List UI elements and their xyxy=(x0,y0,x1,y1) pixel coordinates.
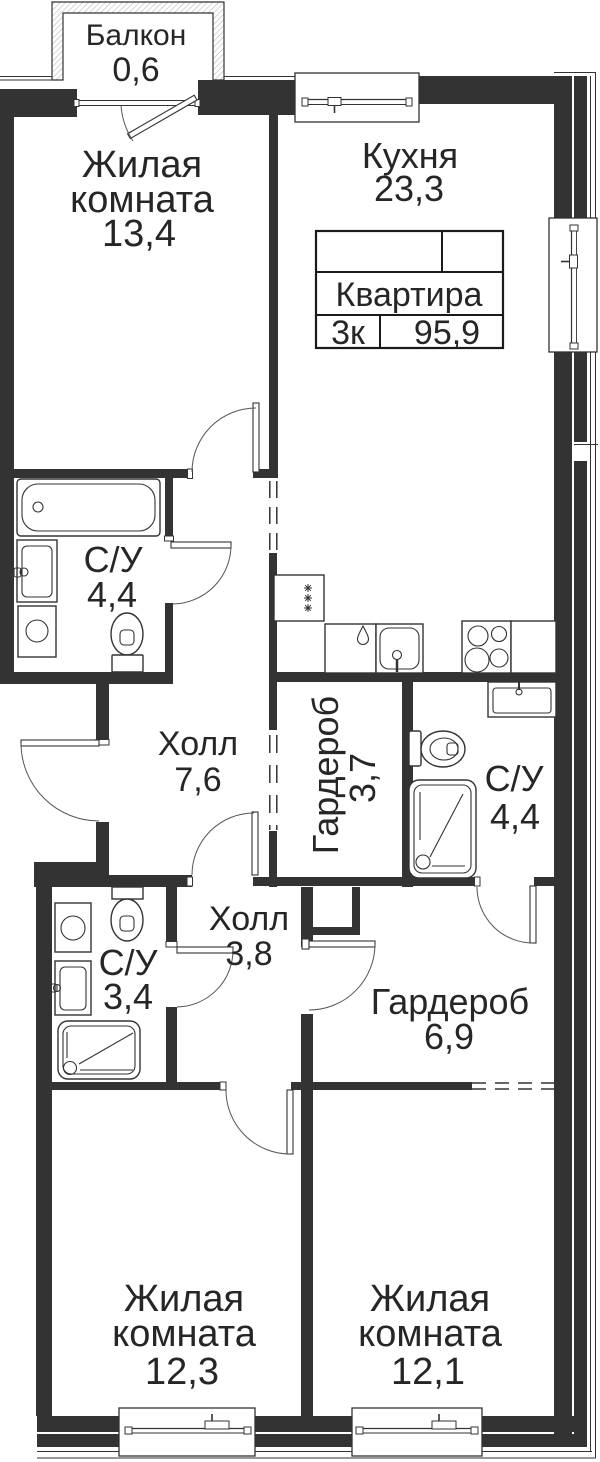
svg-text:13,4: 13,4 xyxy=(102,213,176,255)
svg-text:Балкон: Балкон xyxy=(86,19,187,52)
svg-text:3к: 3к xyxy=(331,314,366,352)
svg-text:С/У: С/У xyxy=(485,758,545,799)
svg-text:комната: комната xyxy=(358,1313,503,1355)
svg-text:4,4: 4,4 xyxy=(87,574,137,615)
svg-text:3,4: 3,4 xyxy=(103,976,153,1017)
svg-text:3,8: 3,8 xyxy=(225,935,272,973)
svg-text:95,9: 95,9 xyxy=(414,314,480,352)
svg-text:Холл: Холл xyxy=(158,725,238,763)
svg-text:Квартира: Квартира xyxy=(336,276,483,314)
svg-text:12,3: 12,3 xyxy=(145,1351,219,1393)
svg-text:23,3: 23,3 xyxy=(374,168,444,209)
svg-text:12,1: 12,1 xyxy=(391,1351,465,1393)
svg-text:Холл: Холл xyxy=(209,900,289,938)
svg-text:3,7: 3,7 xyxy=(342,753,383,803)
svg-text:0,6: 0,6 xyxy=(112,51,159,89)
svg-text:Гардероб: Гардероб xyxy=(305,696,346,854)
svg-text:6,9: 6,9 xyxy=(424,1016,474,1057)
svg-text:7,6: 7,6 xyxy=(174,761,221,799)
svg-text:комната: комната xyxy=(112,1313,257,1355)
svg-text:4,4: 4,4 xyxy=(490,796,540,837)
